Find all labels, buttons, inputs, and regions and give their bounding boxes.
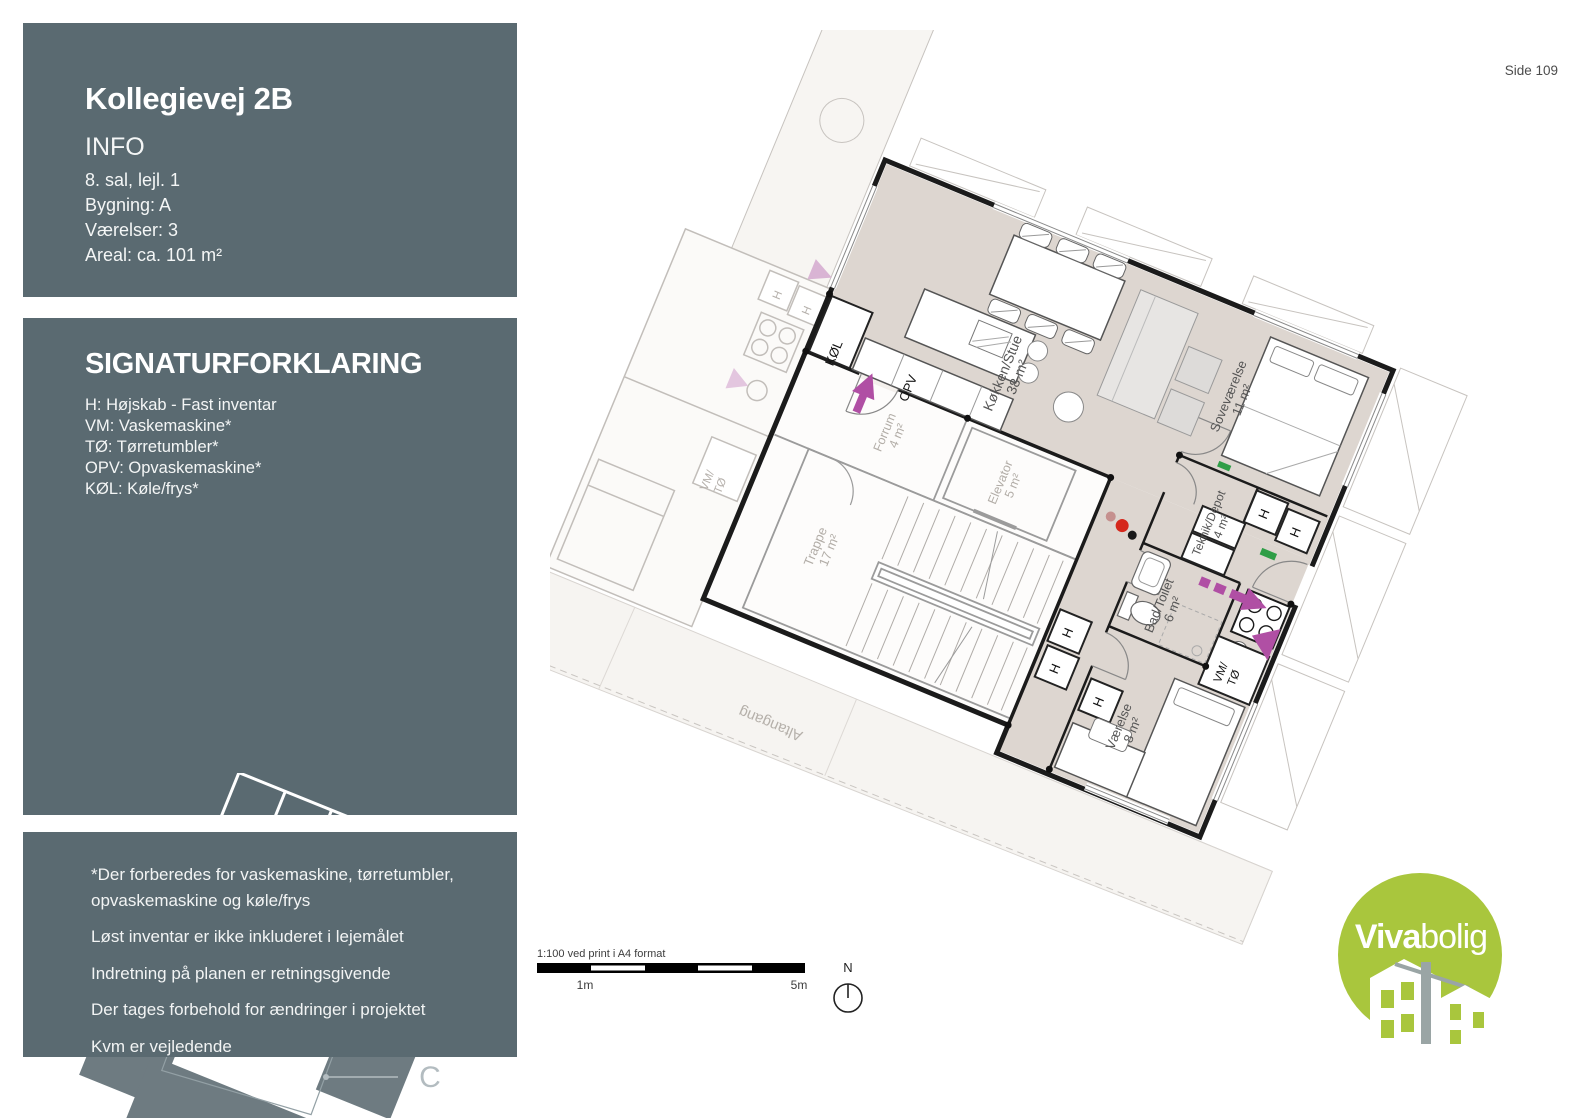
- north-arrow-icon: N: [826, 958, 870, 1018]
- legend-panel: SIGNATURFORKLARING H: Højskab - Fast inv…: [23, 318, 517, 815]
- note-changes: Der tages forbehold for ændringer i proj…: [91, 997, 473, 1023]
- north-arrow: N: [826, 958, 870, 1023]
- legend-item-opv: OPV: Opvaskemaskine*: [85, 458, 487, 479]
- info-panel: Kollegievej 2B INFO 8. sal, lejl. 1 Bygn…: [23, 23, 517, 297]
- legend-item-kol: KØL: Køle/frys*: [85, 479, 487, 500]
- scale-bar: 1:100 ved print i A4 format 1m 5m: [537, 948, 837, 1000]
- logo-text-bold: Viva: [1355, 918, 1422, 956]
- north-label: N: [843, 960, 852, 975]
- scale-bar-graphic: 1m 5m: [537, 963, 817, 997]
- site-label-c: C: [419, 1061, 441, 1094]
- note-sqm: Kvm er vejledende: [91, 1034, 473, 1060]
- notes-panel: *Der forberedes for vaskemaskine, tørret…: [23, 832, 517, 1057]
- legend-item-to: TØ: Tørretumbler*: [85, 437, 487, 458]
- note-layout: Indretning på planen er retningsgivende: [91, 961, 473, 987]
- info-floor: 8. sal, lejl. 1: [85, 168, 477, 193]
- info-area: Areal: ca. 101 m²: [85, 243, 477, 268]
- page-title: Kollegievej 2B: [85, 81, 477, 117]
- info-rooms: Værelser: 3: [85, 218, 477, 243]
- svg-text:Vivabolig: Vivabolig: [1355, 918, 1487, 956]
- scale-caption: 1:100 ved print i A4 format: [537, 948, 837, 960]
- legend-item-h: H: Højskab - Fast inventar: [85, 395, 487, 416]
- info-section-label: INFO: [85, 133, 477, 162]
- note-inventory: Løst inventar er ikke inkluderet i lejem…: [91, 924, 473, 950]
- info-building: Bygning: A: [85, 193, 477, 218]
- legend-title: SIGNATURFORKLARING: [85, 348, 487, 381]
- note-appliances: *Der forberedes for vaskemaskine, tørret…: [91, 862, 473, 913]
- logo-text-light: bolig: [1420, 918, 1487, 956]
- vivabolig-logo-icon: Vivabolig: [1337, 872, 1505, 1047]
- scale-1m: 1m: [577, 978, 594, 992]
- legend-item-vm: VM: Vaskemaskine*: [85, 416, 487, 437]
- vivabolig-logo: Vivabolig: [1337, 872, 1505, 1047]
- scale-5m: 5m: [791, 978, 808, 992]
